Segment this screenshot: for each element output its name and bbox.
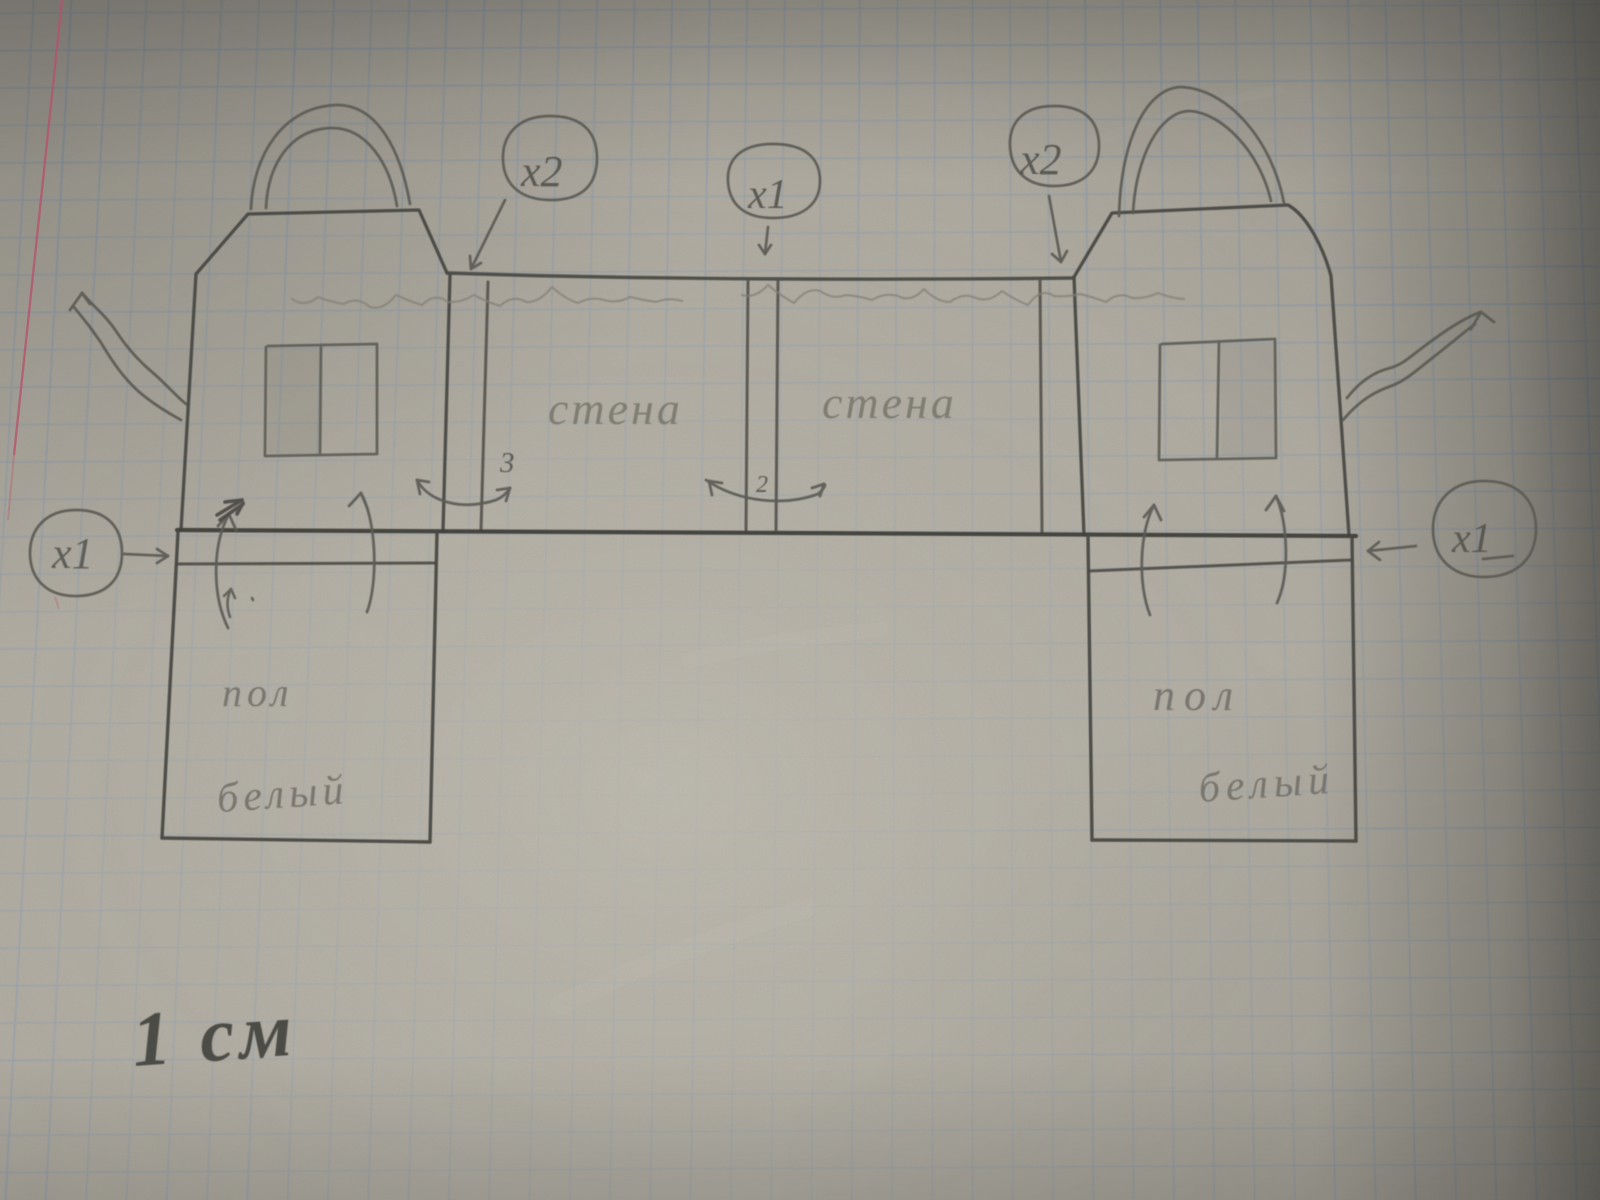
- svg-text:х1: х1: [747, 172, 788, 218]
- svg-text:х2: х2: [1019, 135, 1062, 184]
- svg-text:2: 2: [756, 472, 768, 498]
- svg-text:3: 3: [499, 447, 515, 479]
- svg-text:х2: х2: [520, 147, 563, 196]
- svg-text:х1: х1: [1451, 516, 1492, 562]
- svg-text:белый: белый: [1197, 757, 1336, 812]
- svg-text:стена: стена: [548, 383, 683, 434]
- svg-text:х1: х1: [51, 529, 94, 578]
- svg-text:1 см: 1 см: [129, 986, 299, 1083]
- svg-text:пол: пол: [222, 670, 293, 715]
- svg-text:стена: стена: [822, 377, 957, 428]
- svg-text:белый: белый: [215, 767, 349, 822]
- svg-text:пол: пол: [1153, 671, 1242, 720]
